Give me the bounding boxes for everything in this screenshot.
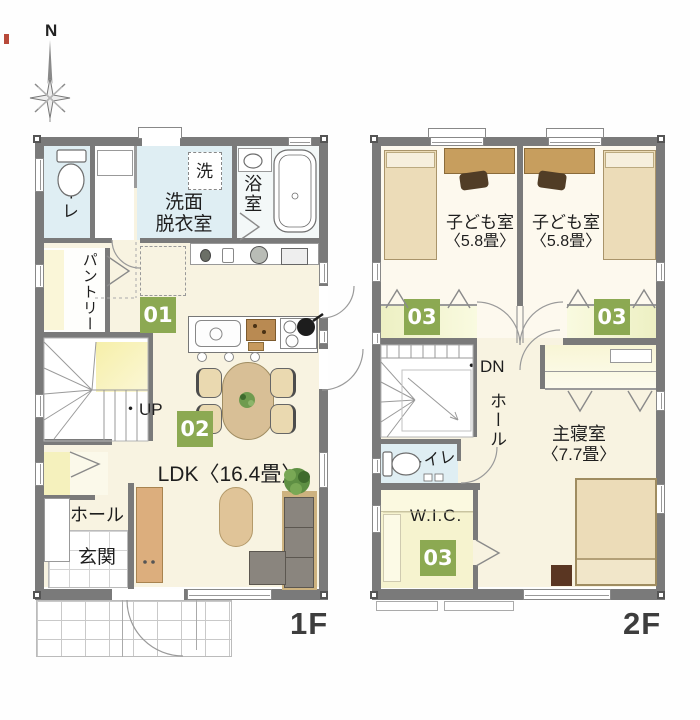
wic-shelf-left [383, 514, 401, 582]
pillar-marker [370, 591, 378, 599]
floor-plan-canvas: N [0, 0, 700, 720]
badge-03-kids1: 03 [404, 299, 440, 335]
pillar-marker [657, 591, 665, 599]
floor-label-2f: 2F [623, 606, 661, 642]
badge-03-wic: 03 [420, 540, 456, 576]
floor-plan-2f: 子ども室 〈5.8畳〉 子ども室 〈5.8畳〉 03 03 ・DN ホール トイ… [0, 0, 700, 720]
window [656, 484, 665, 514]
wall-toilet-right-2f [457, 443, 461, 461]
window [523, 589, 611, 600]
wall-2f-top [372, 137, 665, 146]
wall-2f-right [656, 137, 665, 600]
kids-room2-label: 子ども室 〈5.8畳〉 [526, 213, 606, 252]
window [372, 332, 381, 345]
master-size: 〈7.7畳〉 [536, 445, 622, 465]
master-closet-shelf-line [545, 371, 656, 372]
window [372, 505, 381, 533]
window [372, 262, 381, 282]
kids-bed-right-pillow [605, 152, 654, 168]
pillar-marker [657, 135, 665, 143]
hall-label-2f: ホール [486, 392, 506, 449]
window [430, 137, 484, 146]
wall-2f-bottom [372, 589, 665, 600]
master-label: 主寝室 〈7.7畳〉 [536, 424, 622, 465]
master-bed-foot [577, 560, 655, 584]
master-name: 主寝室 [536, 424, 622, 445]
stairs-floor-2f [381, 345, 473, 437]
wall-master-closet-left [540, 345, 545, 389]
kids-room1-name: 子ども室 [440, 213, 520, 233]
kids-room2-size: 〈5.8畳〉 [526, 233, 606, 252]
kids-bed-left-pillow [386, 152, 435, 168]
window [656, 262, 665, 282]
wall-under-kids-b [563, 338, 665, 345]
eaves [376, 601, 438, 611]
kids-room1-size: 〈5.8畳〉 [440, 233, 520, 252]
wall-wic-right-b [473, 565, 478, 589]
eaves [444, 601, 514, 611]
wall-wic-right-a [473, 490, 478, 540]
nightstand [551, 565, 572, 586]
wall-wic-top [372, 483, 480, 490]
window [372, 458, 381, 474]
kids-room1-label: 子ども室 〈5.8畳〉 [440, 213, 520, 252]
kids-door-zone [477, 306, 567, 338]
dn-label: ・DN [463, 357, 505, 377]
master-closet-box [610, 349, 652, 363]
badge-03-kids2: 03 [594, 299, 630, 335]
wall-toilet-top-2f [372, 439, 461, 444]
master-closet-line [545, 388, 656, 390]
kids-desk-right [524, 148, 595, 174]
pillar-marker [370, 135, 378, 143]
window [656, 391, 665, 411]
window [548, 137, 602, 146]
wic-label: W.I.C. [410, 506, 462, 526]
wall-under-kids-a [372, 338, 477, 345]
kids-room2-name: 子ども室 [526, 213, 606, 233]
